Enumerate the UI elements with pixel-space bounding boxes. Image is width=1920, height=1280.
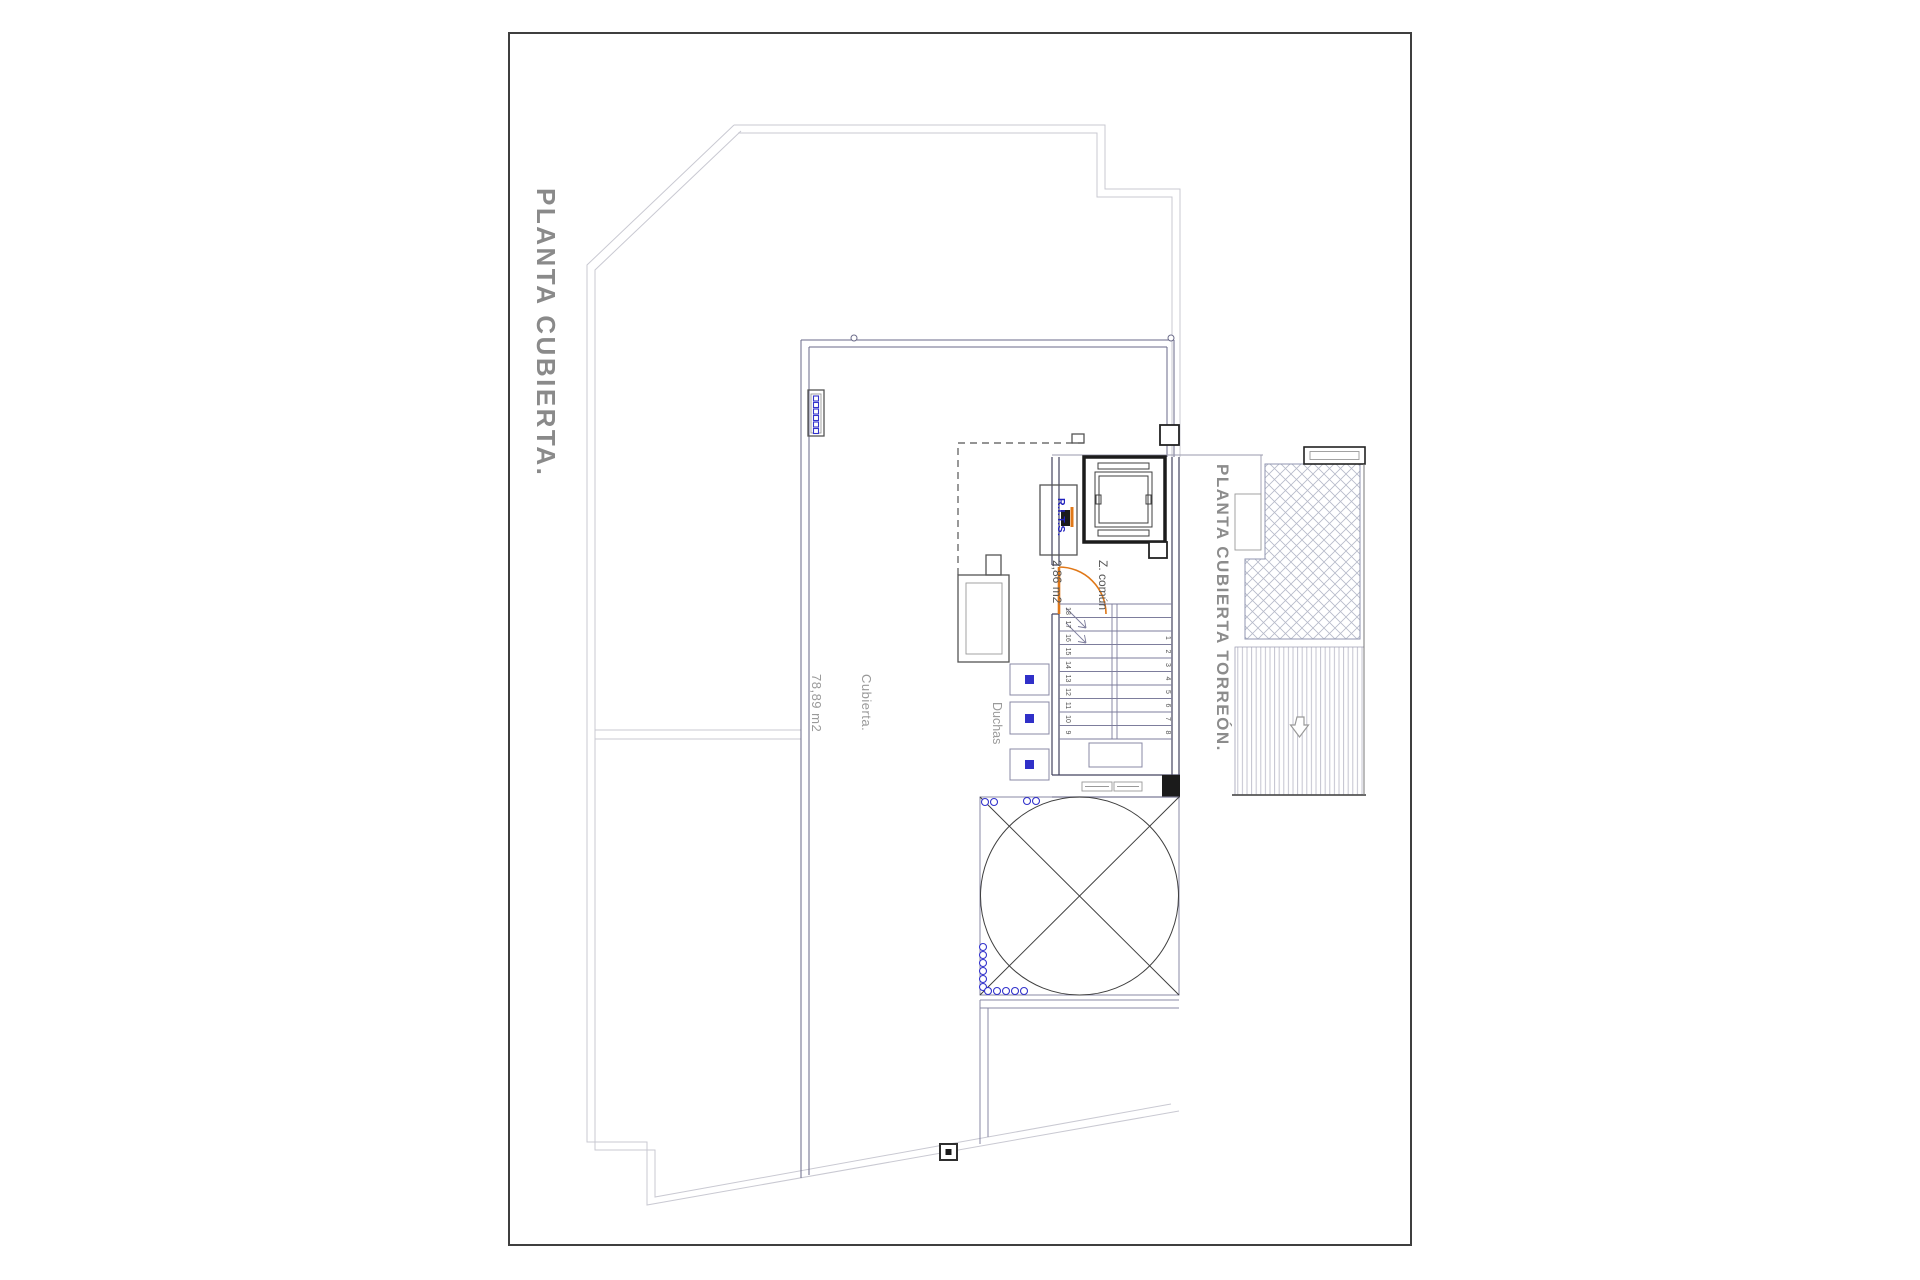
skylight-diagonals <box>980 797 1179 995</box>
drain-dot <box>1012 988 1019 995</box>
drawing-sheet: 18 17 16 15 14 13 12 11 10 9 1 2 3 4 5 6… <box>508 32 1412 1246</box>
roof-division-line <box>595 730 801 739</box>
common-zone-label: Z. común 2,86 m2 <box>1018 560 1141 610</box>
stair-step-number: 13 <box>1064 675 1071 683</box>
grille-slot <box>814 416 819 421</box>
wall-column <box>1162 775 1180 797</box>
stair-step-number: 8 <box>1164 731 1171 735</box>
torreon-section <box>1232 447 1366 795</box>
grille-slot <box>814 429 819 434</box>
drain-dot <box>1003 988 1010 995</box>
inner-wall-face <box>595 131 1172 1197</box>
elevator-shaft <box>1084 425 1179 558</box>
roof-area-label: Cubierta. 78,89 m2 <box>774 674 907 732</box>
drain-dot <box>980 944 987 951</box>
stair-step-number: 12 <box>1064 688 1071 696</box>
skylight-area <box>980 797 1180 1144</box>
grille-slot <box>814 396 819 401</box>
elevator-door-slot <box>1098 530 1149 536</box>
drain-dot <box>1024 798 1031 805</box>
rits-label: R.I.T.S. <box>1054 498 1067 536</box>
stair-step-number: 4 <box>1164 677 1171 681</box>
torreon-hatched-terrace <box>1245 464 1360 639</box>
stair-step-number: 9 <box>1064 731 1071 735</box>
marker-center <box>946 1149 952 1155</box>
shower-drain <box>1025 760 1034 769</box>
drain-dot <box>980 952 987 959</box>
stair-step-number: 3 <box>1164 663 1171 667</box>
stair-landing <box>1089 743 1142 767</box>
vent-grille <box>808 390 824 436</box>
outer-wall-face <box>587 125 1180 1205</box>
drain-dot <box>994 988 1001 995</box>
outer-building-outline <box>587 125 1180 1205</box>
shaft-top-box <box>1160 425 1179 445</box>
planter-chimney <box>986 555 1001 575</box>
shaft-bottom-box <box>1149 542 1167 558</box>
stair-step-number: 14 <box>1064 661 1071 669</box>
roof-area-name: Cubierta. <box>857 674 874 732</box>
elevator-car <box>1095 472 1152 527</box>
torreon-vent <box>1304 447 1365 464</box>
torreon-title: PLANTA CUBIERTA TORREÓN. <box>1211 464 1233 752</box>
common-zone-size: 2,86 m2 <box>1049 560 1064 610</box>
stair-step-number: 17 <box>1064 621 1071 629</box>
shower-drain <box>1025 714 1034 723</box>
drain-dot <box>985 988 992 995</box>
grille-slot <box>814 403 819 408</box>
planter-inner <box>966 583 1002 654</box>
common-zone-name: Z. común <box>1095 560 1110 610</box>
elevator-car-inner <box>1099 476 1148 523</box>
grille-slot <box>814 409 819 414</box>
drain-dot <box>980 960 987 967</box>
drain-dot <box>980 968 987 975</box>
lower-roof-edge <box>980 1000 1179 1144</box>
planter-box <box>958 555 1009 662</box>
floor-plan-linework: 18 17 16 15 14 13 12 11 10 9 1 2 3 4 5 6… <box>510 34 1414 1248</box>
stair-step-number: 6 <box>1164 704 1171 708</box>
showers-label: Duchas <box>989 702 1005 744</box>
stair-treads <box>1059 604 1172 739</box>
grille-slot <box>814 422 819 427</box>
shower-drain <box>1025 675 1034 684</box>
stair-step-number: 7 <box>1164 717 1171 721</box>
roof-edge-node <box>1168 335 1174 341</box>
elevator-door-slot <box>1098 463 1149 469</box>
drain-dot <box>991 799 998 806</box>
page-background: { "sheet": { "title": "PLANTA CUBIERTA."… <box>0 0 1920 1280</box>
shower-trays <box>1010 664 1049 780</box>
drain-dot <box>982 799 989 806</box>
slope-marker <box>940 1144 957 1160</box>
drain-dot <box>1021 988 1028 995</box>
drain-dot <box>1033 798 1040 805</box>
stair-step-number: 10 <box>1064 715 1071 723</box>
roof-edge-node <box>851 335 857 341</box>
stair-step-number: 16 <box>1064 634 1071 642</box>
roof-area-size: 78,89 m2 <box>807 674 824 732</box>
dashed-corner-box <box>1072 434 1084 443</box>
stair-step-number: 2 <box>1164 650 1171 654</box>
stair-step-number: 15 <box>1064 648 1071 656</box>
core-right-wall <box>1172 457 1179 797</box>
drain-dot <box>980 976 987 983</box>
sheet-title: PLANTA CUBIERTA. <box>529 188 562 477</box>
stair-step-number: 5 <box>1164 690 1171 694</box>
torreon-notch <box>1235 494 1261 550</box>
stair-step-number: 11 <box>1064 702 1071 709</box>
stair-step-number: 1 <box>1164 636 1171 640</box>
stair-flight: 18 17 16 15 14 13 12 11 10 9 1 2 3 4 5 6… <box>1059 604 1172 767</box>
